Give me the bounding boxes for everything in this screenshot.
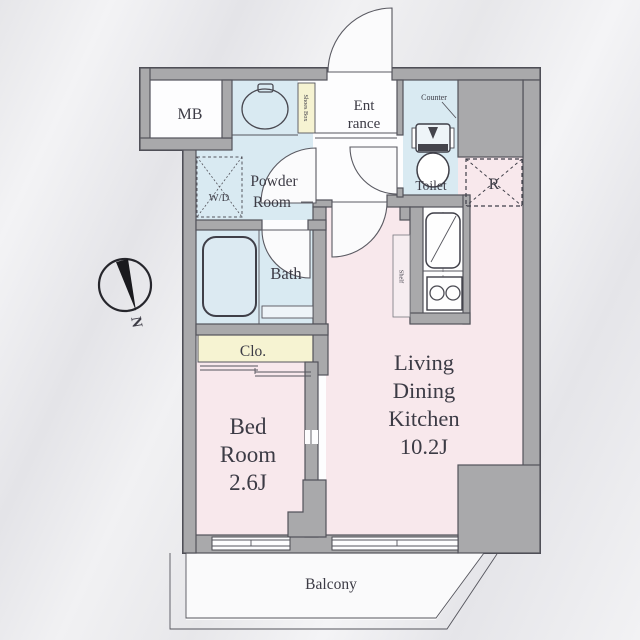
label-ldk-1: Living	[394, 350, 454, 375]
entrance-door-swing	[328, 8, 392, 72]
bedroom-slider-gap	[305, 430, 318, 444]
toilet-seat-band	[418, 144, 448, 151]
label-wd: W/D	[209, 193, 230, 204]
label-bed-size: 2.6J	[229, 470, 267, 495]
bathtub-icon	[203, 237, 256, 316]
label-powder-2: Room	[253, 194, 291, 211]
label-closet: Clo.	[240, 343, 266, 360]
label-powder-1: Powder	[250, 173, 298, 190]
label-bed-1: Bed	[229, 414, 267, 439]
label-bath: Bath	[270, 264, 302, 283]
bath-threshold	[262, 306, 313, 318]
wall-closet-top	[196, 324, 328, 335]
label-entrance-1: Ent	[354, 98, 376, 114]
wall-kitchen-nub	[400, 207, 410, 220]
wall-mb-bottom	[140, 138, 232, 150]
wall-kitchen-bottom	[410, 313, 470, 324]
label-shoes-box: Shoes Box	[302, 94, 309, 122]
wall-block-bottomright	[458, 465, 540, 553]
wall-block-topright	[458, 80, 523, 157]
compass: N	[99, 259, 151, 329]
label-counter: Counter	[421, 93, 447, 102]
wall-top-left	[140, 68, 327, 80]
floorplan-canvas: MB Powder Room W/D Ent rance Shoes Box C…	[0, 0, 640, 640]
wall-top-right	[392, 68, 540, 80]
bedroom-window	[212, 537, 290, 550]
label-ldk-3: Kitchen	[388, 406, 459, 431]
label-refrigerator: R	[489, 176, 500, 193]
wall-mb-right	[222, 80, 232, 138]
wall-bath-top-left	[196, 220, 262, 230]
wall-kitchen-right	[463, 195, 470, 324]
compass-needle-icon	[116, 259, 136, 311]
label-toilet: Toilet	[415, 178, 447, 193]
label-ldk-2: Dining	[393, 378, 456, 403]
wall-kitchen-left	[410, 207, 423, 323]
label-shelf: Shelf	[398, 270, 405, 284]
wall-toilet-left-upper	[397, 80, 403, 135]
wall-toilet-left-stub	[397, 188, 403, 197]
label-ldk-size: 10.2J	[400, 434, 448, 459]
label-entrance-2: rance	[348, 116, 381, 132]
wall-bath-top-right	[308, 220, 326, 230]
label-bed-2: Room	[220, 442, 276, 467]
label-mb: MB	[178, 106, 203, 123]
wall-left	[183, 147, 196, 553]
compass-north-label: N	[127, 315, 145, 329]
ldk-window	[332, 537, 458, 550]
floorplan-svg: MB Powder Room W/D Ent rance Shoes Box C…	[0, 0, 640, 640]
label-balcony: Balcony	[305, 576, 357, 593]
